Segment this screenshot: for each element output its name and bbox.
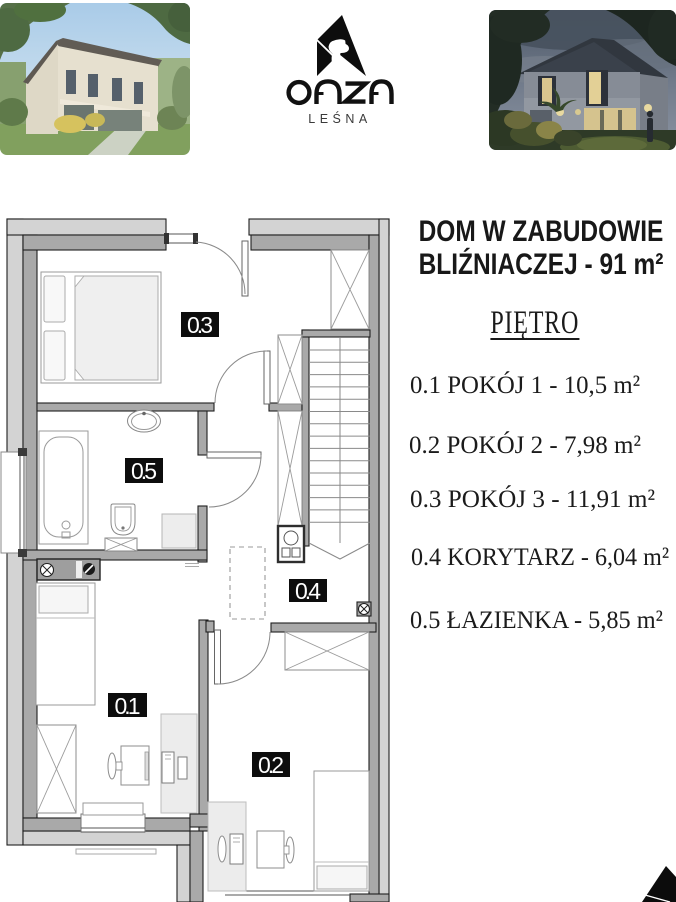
svg-text:0.4: 0.4 <box>295 578 321 604</box>
svg-text:0.1: 0.1 <box>115 693 141 719</box>
svg-text:0.3: 0.3 <box>187 312 213 338</box>
svg-text:0.5: 0.5 <box>131 458 157 484</box>
svg-text:LEŚNA: LEŚNA <box>308 111 372 126</box>
svg-text:0.2: 0.2 <box>258 752 284 778</box>
